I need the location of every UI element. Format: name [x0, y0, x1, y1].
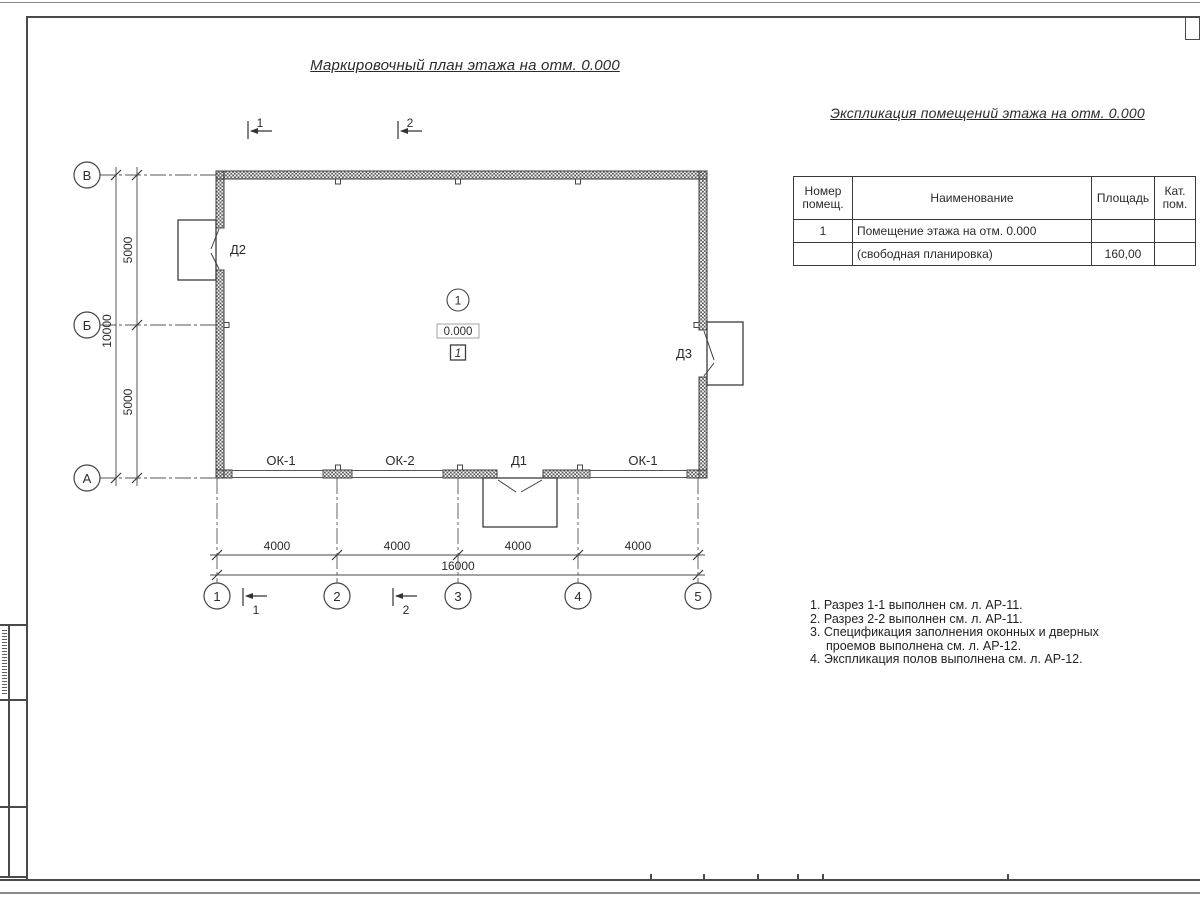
axis-label-3: 3: [454, 589, 461, 604]
section-marks-top: [248, 121, 422, 139]
dim-left-total: 10000: [100, 314, 114, 348]
opening-label-ok1-right: ОК-1: [628, 453, 657, 468]
cell-room-name: (свободная планировка): [853, 243, 1092, 266]
axis-label-v: В: [83, 168, 92, 183]
side-stamp-text: [2, 630, 7, 694]
col-header-name: Наименование: [853, 177, 1092, 220]
axis-label-b: Б: [83, 318, 92, 333]
section-mark-1-top: 1: [257, 116, 264, 130]
dim-left-lower: 5000: [121, 388, 135, 415]
sheet-edge-bottom: [0, 892, 1200, 894]
door-label-d2: Д2: [230, 242, 246, 257]
dim-bottom-1: 4000: [264, 539, 291, 553]
explication-title: Экспликация помещений этажа на отм. 0.00…: [795, 105, 1180, 121]
title-block-tick: [650, 874, 652, 880]
door-porches: [178, 220, 743, 527]
axis-label-4: 4: [574, 589, 581, 604]
axis-label-5: 5: [694, 589, 701, 604]
axis-label-1: 1: [213, 589, 220, 604]
cell-room-name: Помещение этажа на отм. 0.000: [853, 220, 1092, 243]
dim-bottom-total: 16000: [441, 559, 475, 573]
frame-bottom: [0, 879, 1200, 881]
title-block-tick: [1007, 874, 1009, 880]
note-line-continuation: проемов выполнена см. л. АР-12.: [810, 640, 1099, 654]
table-row: (свободная планировка) 160,00: [794, 243, 1196, 266]
opening-label-ok2: ОК-2: [385, 453, 414, 468]
col-header-room-number: Номер помещ.: [794, 177, 853, 220]
dim-left-upper: 5000: [121, 236, 135, 263]
room-number: 1: [455, 294, 462, 308]
table-row: 1 Помещение этажа на отм. 0.000: [794, 220, 1196, 243]
drawing-sheet: 10000 5000 5000 4000 4000 4000 4000 1600…: [0, 0, 1200, 900]
section-mark-2-top: 2: [407, 116, 414, 130]
dim-bottom-4: 4000: [625, 539, 652, 553]
col-header-area: Площадь: [1092, 177, 1155, 220]
section-mark-arrowheads-top: [250, 128, 408, 134]
section-mark-2-bottom: 2: [403, 603, 410, 617]
floor-plan: 10000 5000 5000 4000 4000 4000 4000 1600…: [0, 0, 1200, 900]
title-block-tick: [757, 874, 759, 880]
plan-title: Маркировочный план этажа на отм. 0.000: [265, 57, 665, 74]
axis-label-a: А: [83, 471, 92, 486]
dim-bottom-2: 4000: [384, 539, 411, 553]
cell-room-category: [1155, 220, 1196, 243]
frame-corner-box: [1185, 17, 1200, 40]
dimension-lines: [116, 167, 705, 575]
cell-room-area: [1092, 220, 1155, 243]
col-header-category: Кат. пом.: [1155, 177, 1196, 220]
note-line: 2. Разрез 2-2 выполнен см. л. АР-11.: [810, 613, 1099, 627]
side-stamp-divider: [8, 624, 10, 877]
cell-room-area: 160,00: [1092, 243, 1155, 266]
floor-type-mark: 1: [455, 348, 461, 360]
frame-top: [26, 16, 1200, 18]
side-stamp-line: [0, 624, 27, 626]
dim-bottom-3: 4000: [505, 539, 532, 553]
note-line: 4. Экспликация полов выполнена см. л. АР…: [810, 653, 1099, 667]
note-line: 1. Разрез 1-1 выполнен см. л. АР-11.: [810, 599, 1099, 613]
table-header-row: Номер помещ. Наименование Площадь Кат. п…: [794, 177, 1196, 220]
room-elevation: 0.000: [444, 326, 473, 338]
opening-label-ok1-left: ОК-1: [266, 453, 295, 468]
frame-left: [26, 16, 28, 880]
cell-room-number: 1: [794, 220, 853, 243]
opening-label-d1: Д1: [511, 453, 527, 468]
side-stamp-line: [0, 876, 27, 878]
title-block-tick: [797, 874, 799, 880]
axis-lines: [100, 175, 698, 583]
side-stamp-line: [0, 699, 27, 701]
title-block-tick: [703, 874, 705, 880]
section-mark-1-bottom: 1: [253, 603, 260, 617]
notes-block: 1. Разрез 1-1 выполнен см. л. АР-11. 2. …: [810, 599, 1099, 667]
door-label-d3: Д3: [676, 346, 692, 361]
note-line: 3. Спецификация заполнения оконных и две…: [810, 626, 1099, 640]
cell-room-category: [1155, 243, 1196, 266]
title-block-tick: [822, 874, 824, 880]
axis-label-2: 2: [333, 589, 340, 604]
explication-table: Номер помещ. Наименование Площадь Кат. п…: [793, 176, 1196, 266]
dimension-ticks: [111, 170, 703, 580]
cell-room-number: [794, 243, 853, 266]
sheet-edge-top: [0, 2, 1200, 3]
side-stamp-line: [0, 806, 27, 808]
